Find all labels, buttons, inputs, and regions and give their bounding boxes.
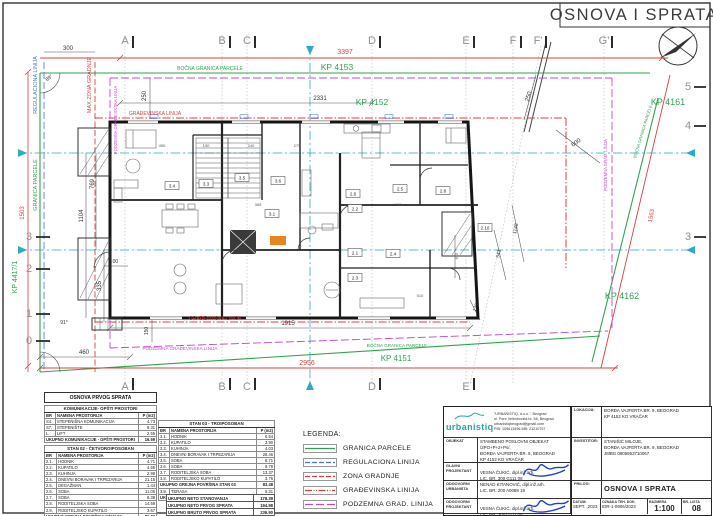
north-arrow-icon	[659, 27, 697, 65]
grid-label-top: G'	[599, 35, 610, 47]
dimension-label: 300	[63, 46, 74, 52]
podzemna-label-bottom: PODZEMNA GRAĐEVINSKA LINIJA	[142, 346, 218, 351]
kp-4152-label: KP 4152	[356, 97, 389, 107]
room-tag-label: 2.8	[440, 189, 447, 194]
gradjevinska-linija-lines	[95, 118, 566, 322]
razmera-cell: RAZMERA 1:100	[648, 499, 682, 514]
kp-4162-label: KP 4162	[605, 291, 639, 301]
gradjevinska-label-bottom: GRAĐEVINSKA LINIJA	[189, 316, 242, 322]
signature-icon	[520, 494, 572, 516]
area-table-section: STAN 02 - ČETVOROIPOSOBANBRNAMENA PROSTO…	[44, 445, 157, 516]
grid-label-left: 1	[26, 308, 32, 320]
dimension-label: 3397	[337, 49, 353, 56]
legend-item-label: REGULACIONA LINIJA	[343, 459, 420, 466]
dimension-label: 769	[90, 178, 96, 189]
grid-label-bottom: B	[218, 381, 225, 393]
podzemna-label-right: PODZEMNA GRAĐ. LINIJA	[603, 139, 608, 191]
grid-lines	[30, 35, 695, 385]
legend-line-sample	[303, 486, 337, 495]
legend-item-label: GRANICA PARCELE	[343, 445, 411, 452]
room-tag-label: 2.6	[350, 192, 357, 197]
dimension-label: 91°	[60, 320, 68, 326]
grid-label-top: D	[368, 35, 376, 47]
summary-table: UKUPNO NETO STANOVANJA178.39UKUPNO NETO …	[166, 494, 275, 516]
legend-item: PODZEMNA GRAD. LINIJA	[303, 497, 443, 511]
lokacija-value: ĐORĐA VAJFERTA BR. 9, BEOGRAD KP 4152 KO…	[602, 407, 712, 438]
odgovorni-projektant-value: VESNA ČUKIĆ, dipl.inž.arh. LIC. BR. 300 …	[478, 499, 571, 514]
glavni-projektant-label: GLAVNI PROJEKTANT	[444, 463, 478, 481]
legend-line-sample	[303, 500, 337, 509]
lokacija-label: LOKACIJA:	[572, 407, 602, 438]
dimension-label: 460	[79, 350, 90, 356]
regulaciona-label: REGULACIONA LINIJA	[33, 56, 39, 114]
bocna-granica-label-top: BOČNA GRANICA PARCELE	[177, 65, 243, 72]
dimension-label: 275	[294, 143, 301, 148]
dimension-label: 100	[110, 259, 119, 265]
area-table-section: STAN 03 - TROIPOSOBANBRNAMENA PROSTORIJA…	[158, 420, 275, 501]
kp-4151-label: KP 4151	[381, 354, 412, 363]
dimension-label: 365	[255, 202, 262, 207]
podzemna-label-left: PODZEMNA GRAĐEVINSKA LINIJA	[113, 86, 118, 155]
legend-item-label: ZONA GRADNJE	[343, 473, 399, 480]
max-zona-label: MAX ZONA GRADNJE	[87, 57, 93, 114]
dimension-label: 1563	[648, 208, 656, 223]
odgovorni-urbanista-label: ODGOVORNI URBANISTA	[444, 481, 478, 499]
room-tag-label: 2.5	[397, 187, 404, 192]
grid-label-bottom: C	[243, 381, 251, 393]
investitor-label: INVESTITOR:	[572, 438, 602, 481]
grid-label-top: B	[218, 35, 225, 47]
dimension-label: 2956	[299, 360, 315, 367]
grid-label-right: 3	[685, 231, 691, 243]
interior-walls	[110, 122, 478, 318]
glavni-projektant-value: VESNA ČUKIĆ, dipl.inž.arh. LIC. BR. 300 …	[478, 463, 571, 481]
room-tag-label: 3.6	[275, 179, 282, 184]
legend-item: GRAĐEVINSKA LINIJA	[303, 483, 443, 497]
grid-label-left: 3	[26, 231, 32, 243]
room-tag-label: 2.10	[481, 226, 490, 231]
investitor-value: STANIŠIĆ MILOJE, ĐORĐA VAJFERTA BR. 9, B…	[602, 438, 712, 481]
dimension-label: 600	[571, 137, 583, 148]
sheet-title: OSNOVA I SPRATA	[550, 6, 713, 24]
legend-line-sample	[303, 444, 337, 453]
legend-item: GRANICA PARCELE	[303, 441, 443, 455]
grid-label-top: F'	[534, 35, 543, 47]
legend-title: LEGENDA:	[303, 431, 443, 438]
objekat-label: OBJEKAT	[444, 438, 478, 463]
grid-label-top: C	[243, 35, 251, 47]
grid-label-top: E	[462, 35, 469, 47]
legend-item: ZONA GRADNJE	[303, 469, 443, 483]
odgovorni-projektant-label: ODGOVORNI PROJEKTANT	[444, 499, 478, 514]
room-tag-label: 2.1	[352, 251, 359, 256]
drawing-sheet: OSNOVA I SPRATA	[0, 0, 713, 516]
company-info: "URBANISTIQ, d.o.o.", Beograd ul. Pere V…	[494, 412, 554, 433]
dimension-label: 240	[248, 143, 255, 148]
dimension-label: 1915	[281, 321, 295, 327]
area-table-first-floor: OSNOVA PRVOG SPRATA KOMUNIKACIJE- OPŠTI …	[44, 392, 157, 516]
prilog-label: PRILOG:	[572, 481, 602, 499]
legend-line-sample	[303, 458, 337, 467]
room-tag-label: 3.3	[203, 182, 210, 187]
dimension-label: 1148	[512, 223, 520, 235]
grid-label-right: 4	[685, 120, 691, 132]
legend-line-sample	[303, 472, 337, 481]
room-tag-label: 2.3	[352, 276, 359, 281]
kp-4153-label: KP 4153	[321, 62, 354, 72]
dimension-label: 335	[97, 280, 103, 291]
dimension-label: 1104	[79, 209, 85, 223]
room-tag-label: 3.5	[239, 176, 246, 181]
room-tag-label: 2.2	[352, 207, 359, 212]
dimension-label: 615	[454, 252, 459, 259]
room-tag-label: 3.4	[169, 184, 176, 189]
bocna-granica-label-bottom: BOČNA GRANICA PARCELE	[367, 342, 427, 348]
dimension-label: 250	[525, 90, 534, 102]
oznaka-cell: OZNAKA TEH. DOK. IDR-1-0906/2023	[601, 499, 648, 514]
prilog-value: OSNOVA I SPRATA	[602, 481, 712, 499]
grid-label-top: F	[510, 35, 517, 47]
br-lista-cell: BR. LISTA 08	[682, 499, 711, 514]
area-table-stan03: STAN 03 - TROIPOSOBANBRNAMENA PROSTORIJA…	[158, 420, 275, 503]
balconies	[78, 128, 472, 330]
dimension-label: 2331	[313, 96, 327, 102]
grid-label-right: 5	[685, 81, 691, 93]
datum-cell: DATUM: SEPT. ,2023	[572, 499, 601, 514]
legend-item-label: GRAĐEVINSKA LINIJA	[343, 487, 419, 494]
dimension-label: 450	[159, 143, 166, 148]
legend: LEGENDA: GRANICA PARCELEREGULACIONA LINI…	[303, 431, 443, 511]
dimension-label: 150	[144, 327, 150, 336]
kp-4417-label: KP 4417/1	[12, 261, 19, 294]
building-outline	[110, 122, 478, 318]
granica-parcele-label: GRANICA PARCELE	[33, 159, 39, 211]
grid-label-left: 2	[26, 263, 32, 275]
legend-item: REGULACIONA LINIJA	[303, 455, 443, 469]
logo-flourish-icon	[453, 412, 485, 421]
dimension-label: 541	[495, 249, 503, 259]
company-logo: urbanistiq	[446, 412, 492, 432]
grid-label-bottom: E	[462, 381, 469, 393]
title-block: urbanistiq "URBANISTIQ, d.o.o.", Beograd…	[443, 406, 712, 516]
grid-label-left: 0	[26, 335, 32, 347]
podzemna-linija-lines	[110, 78, 612, 348]
grid-label-top: A	[121, 35, 129, 47]
grid-label-bottom: D	[368, 381, 376, 393]
datum-strip: DATUM: SEPT. ,2023 OZNAKA TEH. DOK. IDR-…	[572, 499, 712, 514]
dimension-label: 160	[395, 202, 402, 207]
room-tag-label: 3.1	[269, 212, 276, 217]
kitchen-highlight	[270, 236, 286, 245]
legend-item-label: PODZEMNA GRAD. LINIJA	[343, 501, 433, 508]
company-cell: urbanistiq "URBANISTIQ, d.o.o.", Beograd…	[444, 407, 571, 438]
furniture-layer	[114, 124, 466, 308]
dimension-label: 1503	[20, 206, 26, 220]
dimension-label: 250	[142, 90, 148, 101]
kp-4161-label: KP 4161	[651, 97, 685, 107]
signature-icon	[520, 458, 572, 482]
area-table-section: KOMUNIKACIJE- OPŠTI PROSTORIBRNAMENA PRO…	[44, 405, 157, 443]
dimension-label: 130	[203, 143, 210, 148]
room-tags-layer: 3.43.33.53.63.12.62.52.82.22.12.42.32.10	[165, 174, 492, 282]
room-tag-label: 2.4	[390, 252, 397, 257]
gradjevinska-label-top: GRAĐEVINSKA LINIJA	[129, 111, 182, 117]
dimension-label: 510	[417, 293, 424, 298]
area-table1-title: OSNOVA PRVOG SPRATA	[44, 392, 157, 403]
dimension-label: 89°	[45, 74, 55, 83]
area-summary-table: UKUPNO NETO STANOVANJA178.39UKUPNO NETO …	[166, 494, 275, 516]
